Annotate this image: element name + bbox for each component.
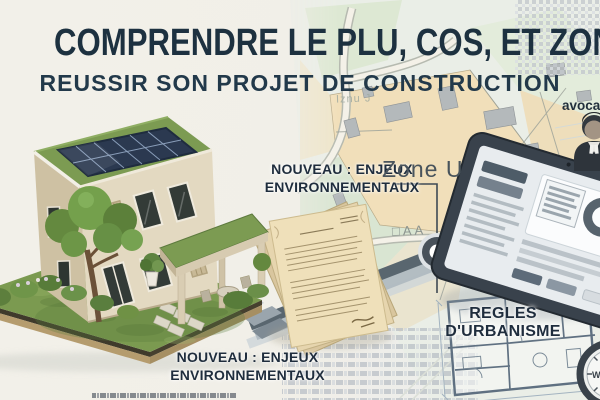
compass-west-label: W xyxy=(592,370,600,380)
map-zone-label: Zone U xyxy=(382,156,463,183)
callout-line: NOUVEAU : ENJEUX xyxy=(150,349,345,367)
callout-line: ENVIRONNEMENTAUX xyxy=(150,367,345,385)
callout-environment-bottom: NOUVEAU : ENJEUX ENVIRONNEMENTAUX xyxy=(150,349,345,385)
map-faint-label: Iznu J xyxy=(336,92,372,105)
urbanism-rules-label: REGLES D'URBANISME xyxy=(413,305,593,341)
lawyer-label: avocat xyxy=(562,98,600,113)
infographic-root: W COMPRENDRE LE PLU, COS, ET ZONES REUSS… xyxy=(0,0,600,400)
house-illustration xyxy=(0,117,280,372)
pixel-dither-block xyxy=(92,393,237,400)
page-title: COMPRENDRE LE PLU, COS, ET ZONES xyxy=(54,22,546,65)
page-subtitle: REUSSIR SON PROJET DE CONSTRUCTION xyxy=(0,70,600,97)
map-parcel-label: □AA xyxy=(392,222,427,238)
